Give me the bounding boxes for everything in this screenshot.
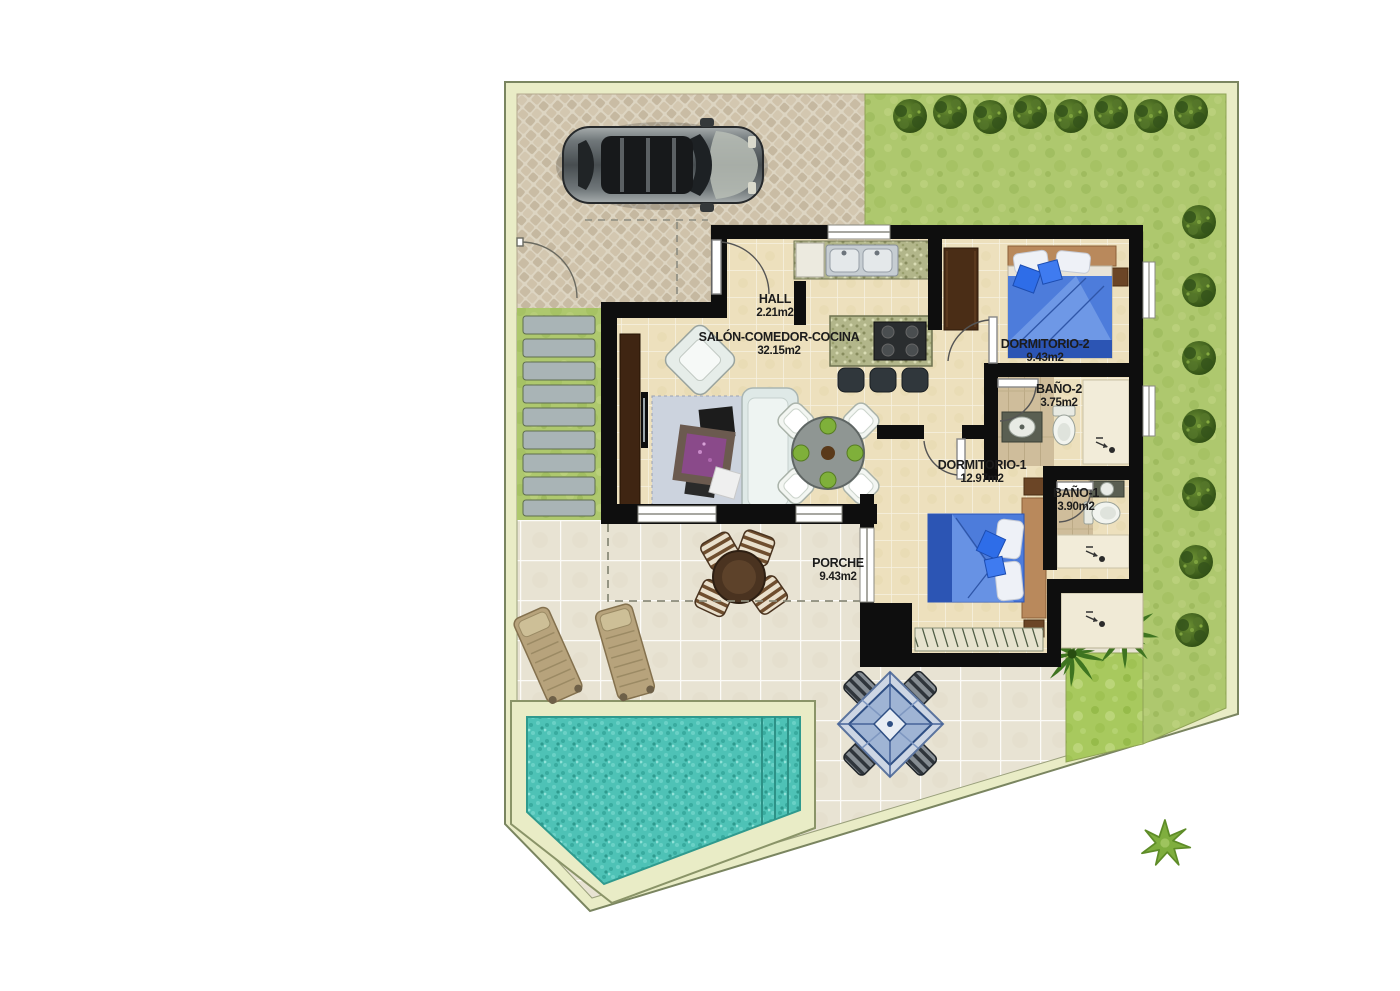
kitchen-window bbox=[828, 225, 890, 239]
kitchen-counter bbox=[794, 241, 936, 279]
nightstand bbox=[1024, 478, 1044, 495]
sliding-door-mat bbox=[915, 628, 1043, 651]
cushion bbox=[1038, 260, 1062, 284]
shower1-tray bbox=[1057, 535, 1129, 568]
sink bbox=[1101, 483, 1114, 496]
nightstand bbox=[1112, 268, 1128, 286]
bar-stool bbox=[870, 368, 896, 392]
bedroom2-window-sill bbox=[1143, 262, 1155, 318]
bar-stool bbox=[838, 368, 864, 392]
bed-footer bbox=[1008, 340, 1112, 358]
garden-lower-right bbox=[1066, 653, 1143, 762]
living-room-window bbox=[796, 506, 842, 522]
floor-plan-drawing bbox=[0, 0, 1400, 991]
gazebo bbox=[838, 670, 943, 777]
parked-car bbox=[556, 118, 768, 212]
car-mirror bbox=[700, 118, 714, 127]
shrub bbox=[1142, 820, 1190, 865]
living-room-window bbox=[638, 506, 716, 522]
kitchen-island bbox=[830, 316, 932, 392]
bathroom2-window-sill bbox=[1143, 386, 1155, 436]
floor-plan-canvas: HALL 2.21m2 SALÓN-COMEDOR-COCINA 32.15m2… bbox=[0, 0, 1400, 991]
car-mirror bbox=[700, 203, 714, 212]
wardrobe bbox=[944, 248, 978, 330]
shower2-tray bbox=[1083, 380, 1129, 464]
outdoor-shower-platform bbox=[1061, 593, 1143, 648]
rug-and-coffee-table bbox=[652, 396, 744, 512]
bathroom2-fixtures bbox=[1002, 406, 1075, 445]
headboard bbox=[1022, 498, 1046, 618]
pillow bbox=[1055, 250, 1091, 273]
stepping-stones bbox=[523, 316, 595, 516]
bar-stool bbox=[902, 368, 928, 392]
cushion bbox=[984, 556, 1005, 577]
bedroom1-window bbox=[860, 528, 874, 602]
